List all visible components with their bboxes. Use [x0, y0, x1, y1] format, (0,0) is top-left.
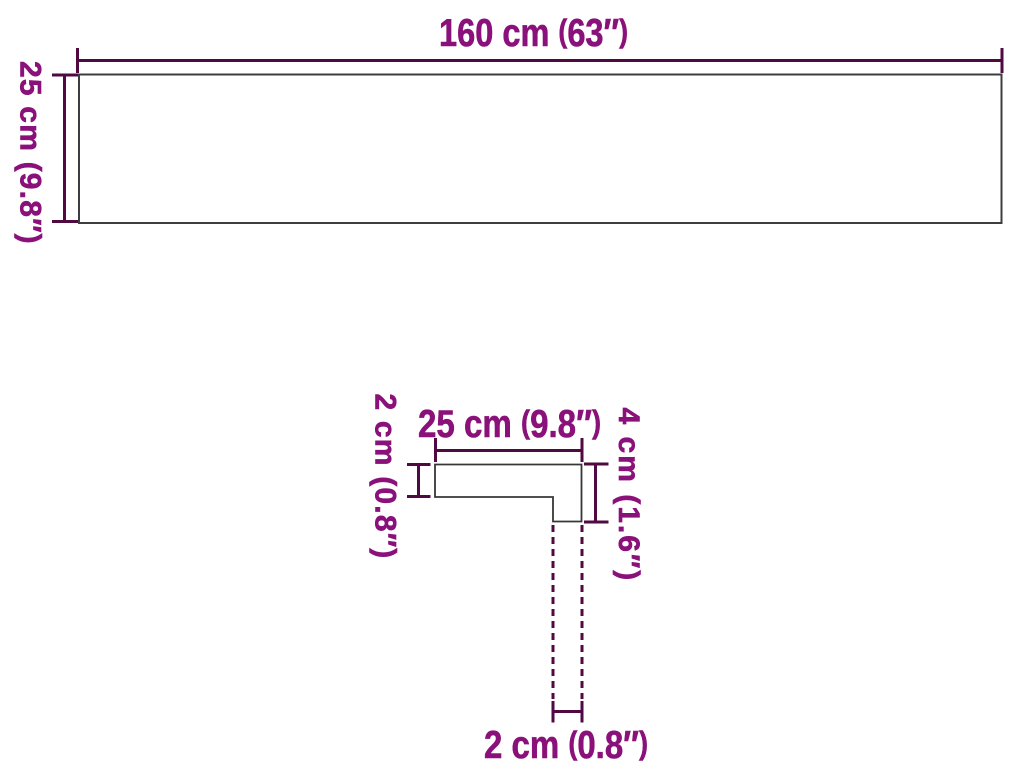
- svg-text:4 cm (1.6″): 4 cm (1.6″): [612, 408, 645, 583]
- svg-text:2 cm (0.8″): 2 cm (0.8″): [369, 394, 402, 560]
- svg-text:25 cm (9.8″): 25 cm (9.8″): [418, 403, 601, 446]
- svg-text:25 cm (9.8″): 25 cm (9.8″): [14, 61, 47, 245]
- svg-text:2 cm (0.8″): 2 cm (0.8″): [484, 724, 648, 767]
- svg-text:160 cm (63″): 160 cm (63″): [439, 12, 628, 55]
